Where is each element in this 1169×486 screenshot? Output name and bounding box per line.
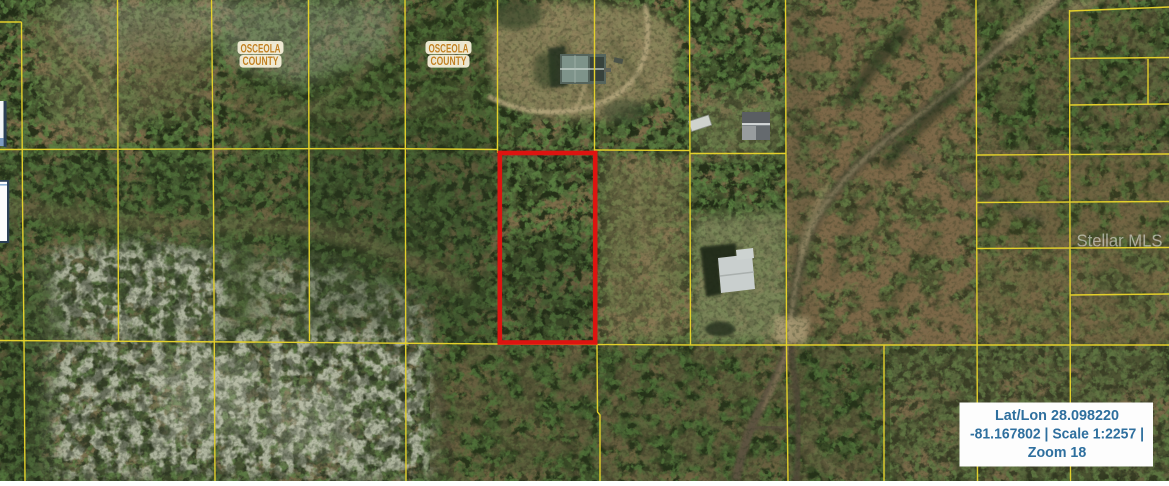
svg-text:Zoom 18: Zoom 18 bbox=[1028, 444, 1087, 461]
svg-text:Stellar MLS: Stellar MLS bbox=[1077, 231, 1163, 251]
svg-text:COUNTY: COUNTY bbox=[243, 54, 279, 68]
svg-text:COUNTY: COUNTY bbox=[431, 54, 467, 68]
svg-text:Lat/Lon 28.098220: Lat/Lon 28.098220 bbox=[995, 407, 1119, 424]
svg-text:-81.167802 | Scale 1:2257 |: -81.167802 | Scale 1:2257 | bbox=[970, 426, 1144, 443]
